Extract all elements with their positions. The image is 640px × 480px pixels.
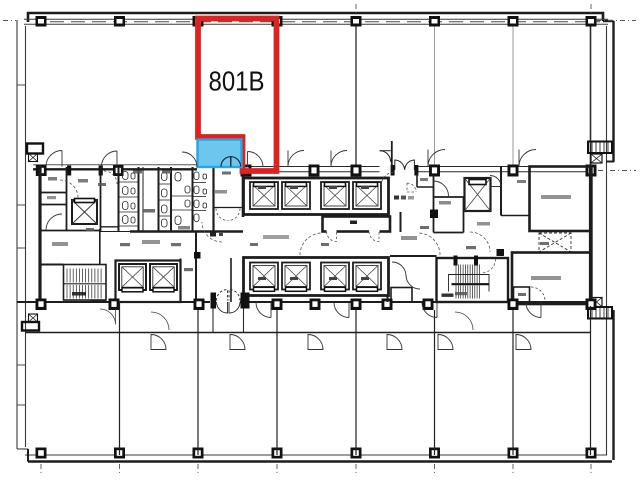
svg-text:801B: 801B bbox=[209, 66, 265, 97]
